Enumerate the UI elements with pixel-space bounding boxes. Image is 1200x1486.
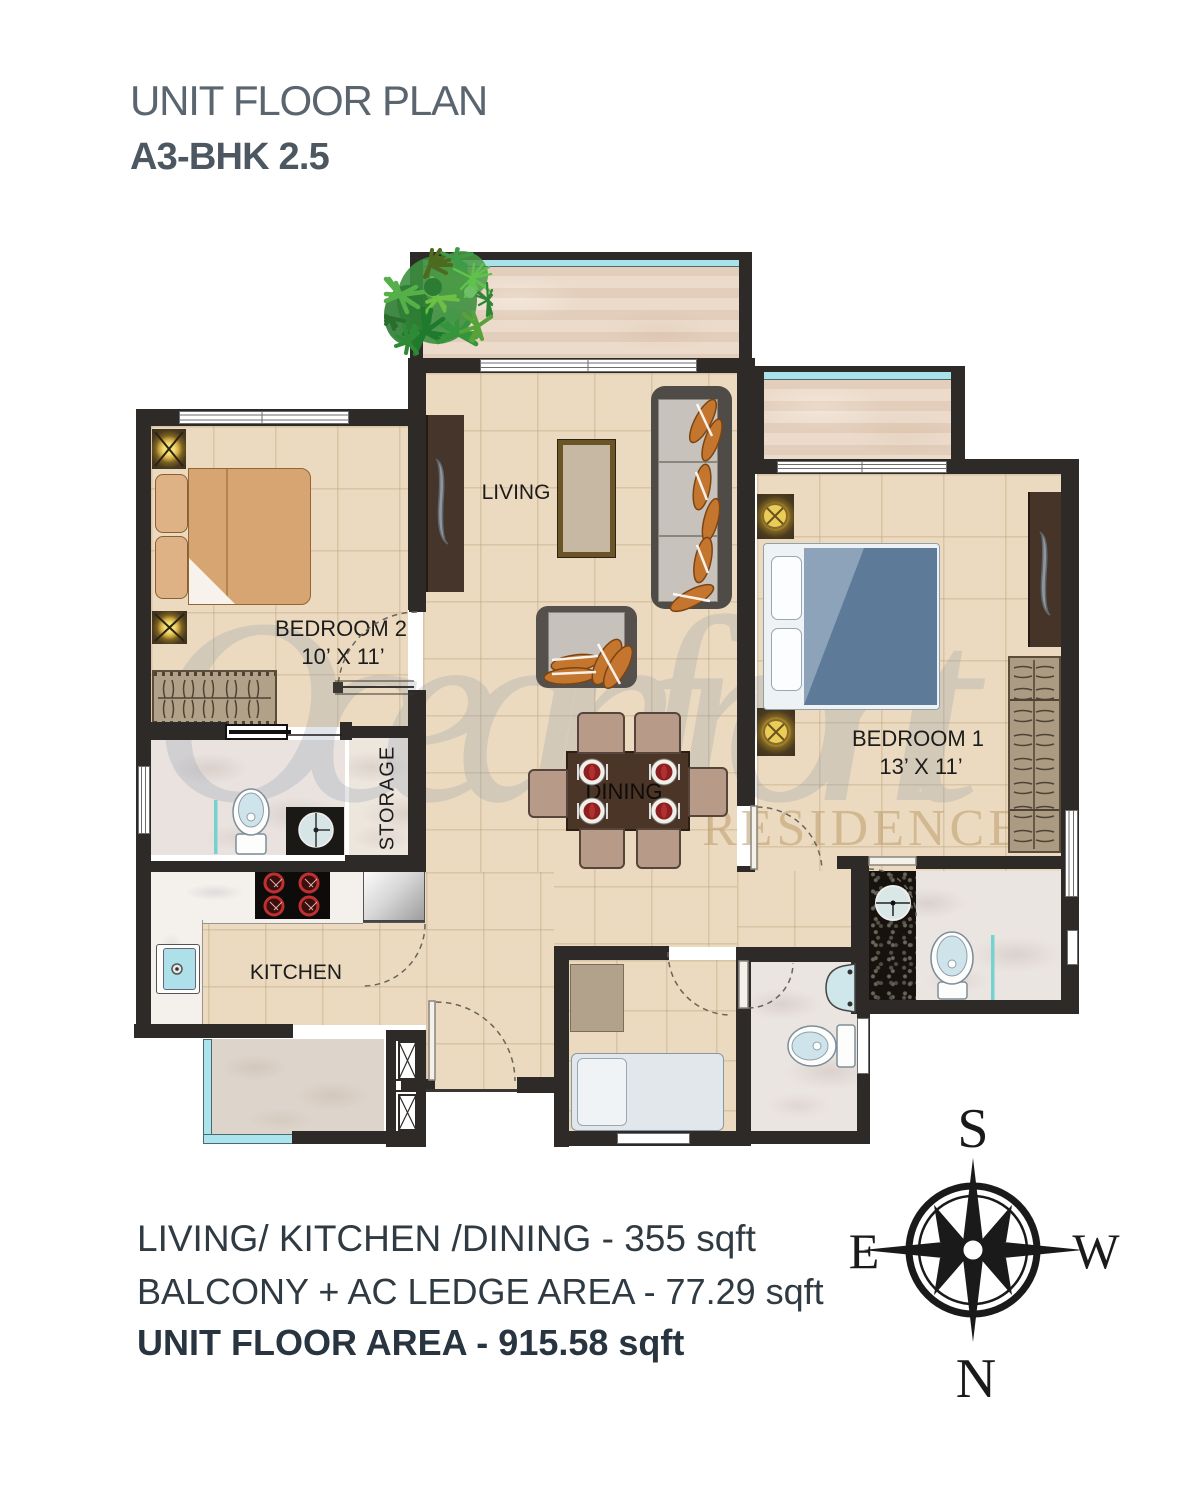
svg-text:RESIDENCE: RESIDENCE bbox=[702, 800, 1024, 857]
